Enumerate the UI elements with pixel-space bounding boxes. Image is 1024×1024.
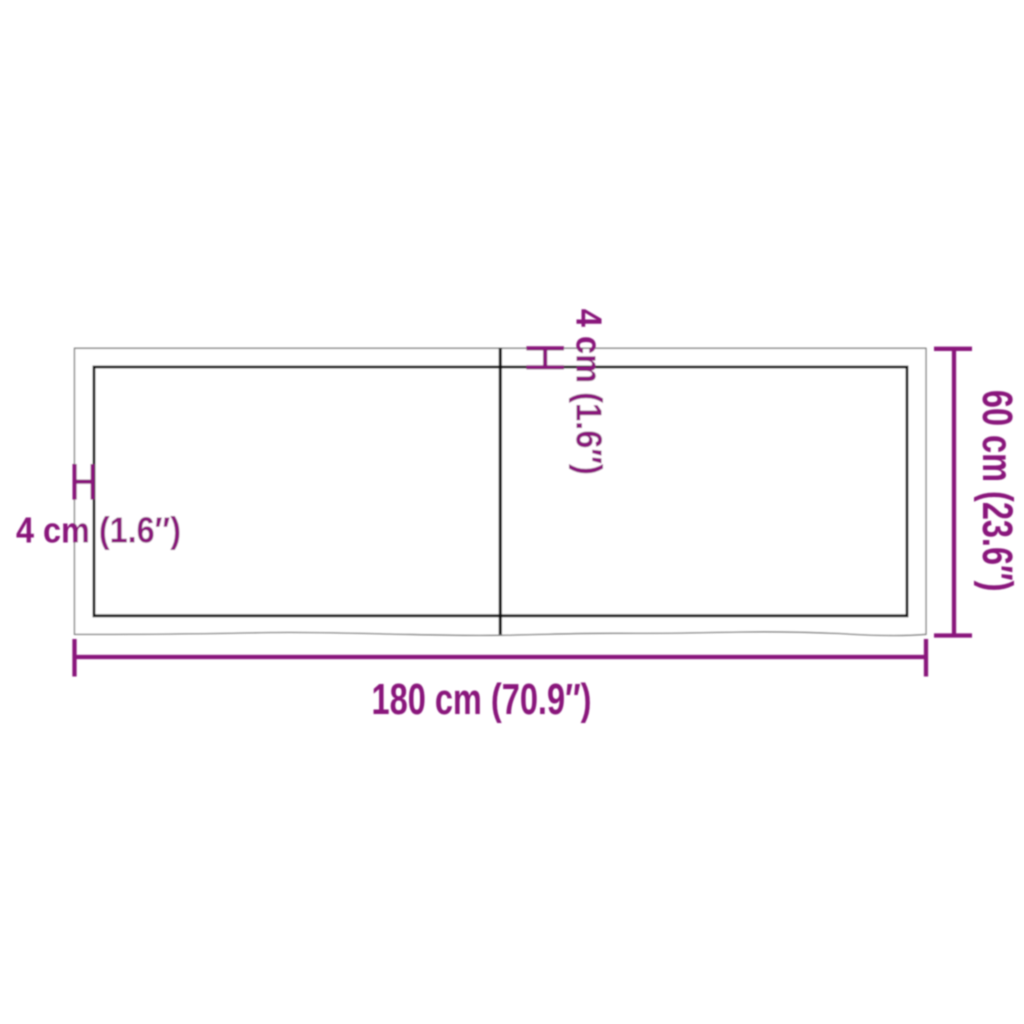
svg-text:4 cm (1.6″): 4 cm (1.6″) [568, 309, 609, 475]
svg-text:60 cm (23.6″): 60 cm (23.6″) [973, 390, 1021, 592]
svg-text:180 cm (70.9″): 180 cm (70.9″) [372, 675, 592, 724]
svg-text:4 cm (1.6″): 4 cm (1.6″) [16, 510, 181, 551]
